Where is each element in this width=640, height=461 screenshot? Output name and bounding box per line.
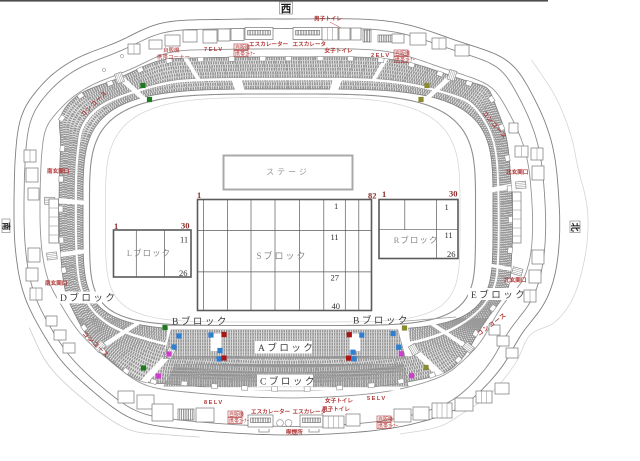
svg-text:11: 11	[180, 235, 188, 245]
svg-text:北玄関口: 北玄関口	[504, 276, 527, 284]
svg-text:自販機: 自販機	[235, 44, 250, 51]
svg-text:27: 27	[331, 273, 340, 283]
svg-text:26: 26	[447, 249, 456, 259]
svg-text:女子トイレ: 女子トイレ	[325, 47, 353, 55]
svg-text:11: 11	[445, 230, 453, 240]
svg-text:11: 11	[331, 232, 339, 242]
svg-text:北: 北	[570, 223, 581, 232]
svg-text:男子トイレ: 男子トイレ	[322, 405, 350, 413]
svg-text:北玄関口: 北玄関口	[506, 168, 529, 176]
svg-text:自販機: 自販機	[378, 416, 393, 423]
svg-text:82: 82	[368, 191, 377, 201]
svg-text:エスカレーター: エスカレーター	[249, 40, 289, 48]
svg-text:携帯ｺｰﾅｰ: 携帯ｺｰﾅｰ	[229, 418, 250, 425]
svg-text:ステージ: ステージ	[266, 168, 310, 177]
svg-text:Aブロック: Aブロック	[258, 342, 315, 354]
svg-text:喫煙所: 喫煙所	[286, 428, 303, 436]
svg-text:Dブロック: Dブロック	[60, 292, 117, 304]
svg-text:26: 26	[179, 268, 188, 278]
svg-text:女子トイレ: 女子トイレ	[325, 397, 353, 405]
svg-text:携帯ｺｰﾅｰ: 携帯ｺｰﾅｰ	[395, 57, 416, 64]
svg-text:Bブロック: Bブロック	[172, 316, 229, 328]
svg-text:Eブロック: Eブロック	[471, 289, 527, 301]
svg-text:1: 1	[382, 189, 386, 199]
svg-text:5ELV: 5ELV	[367, 396, 387, 402]
svg-text:南玄関口: 南玄関口	[47, 167, 70, 175]
svg-text:南: 南	[1, 222, 11, 230]
svg-text:自販機: 自販機	[395, 50, 410, 57]
svg-text:30: 30	[181, 221, 190, 231]
svg-text:1: 1	[114, 221, 118, 231]
svg-text:1: 1	[445, 202, 449, 212]
svg-text:自販機: 自販機	[163, 46, 180, 54]
svg-text:携帯コーナー: 携帯コーナー	[157, 53, 190, 61]
svg-text:携帯ｺｰﾅｰ: 携帯ｺｰﾅｰ	[235, 51, 256, 58]
svg-text:1: 1	[334, 201, 338, 211]
svg-text:7ELV: 7ELV	[204, 47, 224, 53]
svg-text:Cブロック: Cブロック	[260, 375, 317, 387]
svg-text:1: 1	[197, 190, 201, 200]
svg-text:Bブロック: Bブロック	[353, 315, 410, 327]
svg-text:エスカレータ: エスカレータ	[293, 40, 327, 48]
svg-text:2ELV: 2ELV	[371, 53, 391, 59]
svg-text:Sブロック: Sブロック	[256, 250, 307, 261]
svg-text:8ELV: 8ELV	[204, 400, 224, 406]
svg-text:エスカレーター: エスカレーター	[251, 408, 291, 416]
svg-text:40: 40	[332, 301, 341, 311]
svg-text:Lブロック: Lブロック	[127, 248, 171, 258]
svg-text:南玄関口: 南玄関口	[45, 279, 68, 287]
svg-text:Rブロック: Rブロック	[394, 235, 439, 245]
svg-text:男子トイレ: 男子トイレ	[314, 15, 342, 23]
svg-text:携帯ｺｰﾅｰ: 携帯ｺｰﾅｰ	[378, 423, 399, 430]
svg-text:30: 30	[449, 189, 458, 199]
svg-text:西: 西	[281, 3, 292, 15]
svg-text:自販機: 自販機	[229, 411, 244, 418]
